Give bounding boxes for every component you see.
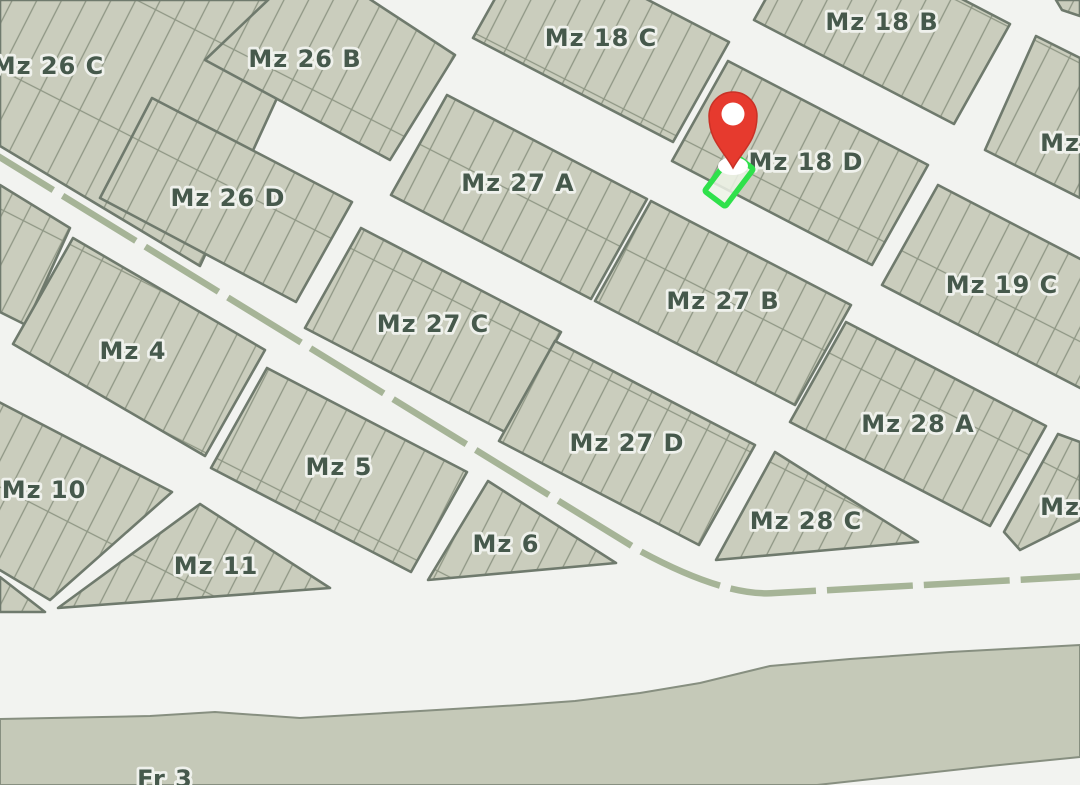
- block-label-mz-26-b: Mz 26 B: [248, 45, 361, 73]
- pin-hole: [722, 103, 745, 126]
- block-label-mz-26-c: Mz 26 C: [0, 52, 104, 80]
- block-label-mz-18-c: Mz 18 C: [545, 24, 658, 52]
- block-label-mz-27-c: Mz 27 C: [377, 310, 490, 338]
- block-label-mz-11: Mz 11: [174, 552, 259, 580]
- block-label-mz-27-b: Mz 27 B: [666, 287, 779, 315]
- block-label-mz-19-c: Mz 19 C: [946, 271, 1059, 299]
- block-label-mz-18-b: Mz 18 B: [825, 8, 938, 36]
- block-label-mz-28-c: Mz 28 C: [750, 507, 863, 535]
- block-label-fr-3: Fr 3: [137, 765, 193, 785]
- block-label-mz-27-d: Mz 27 D: [570, 429, 685, 457]
- block-label-mz-18-d: Mz 18 D: [749, 148, 864, 176]
- map-svg[interactable]: Mz 26 CMz 26 BMz 18 CMz 18 BMz 26 DMz 27…: [0, 0, 1080, 785]
- block-label-mz-28-a: Mz 28 A: [861, 410, 975, 438]
- block-label-mz-4: Mz 4: [100, 337, 167, 365]
- block-label-mz-27-a: Mz 27 A: [461, 169, 575, 197]
- block-label-mz-10: Mz 10: [2, 476, 87, 504]
- block-label-mz-26-d: Mz 26 D: [171, 184, 286, 212]
- block-label-mz-right-bottom: Mz: [1040, 493, 1080, 521]
- block-label-mz-6: Mz 6: [473, 530, 540, 558]
- block-label-mz-right-top: Mz: [1040, 129, 1080, 157]
- block-label-mz-5: Mz 5: [306, 453, 373, 481]
- map-canvas[interactable]: Mz 26 CMz 26 BMz 18 CMz 18 BMz 26 DMz 27…: [0, 0, 1080, 785]
